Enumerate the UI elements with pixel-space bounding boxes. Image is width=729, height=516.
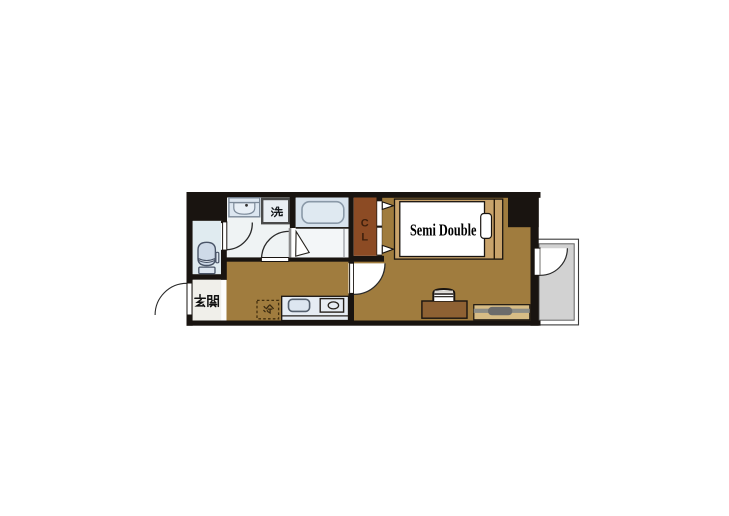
svg-text:C: C xyxy=(361,217,369,229)
svg-text:Semi Double: Semi Double xyxy=(410,220,477,239)
svg-text:L: L xyxy=(361,231,368,243)
